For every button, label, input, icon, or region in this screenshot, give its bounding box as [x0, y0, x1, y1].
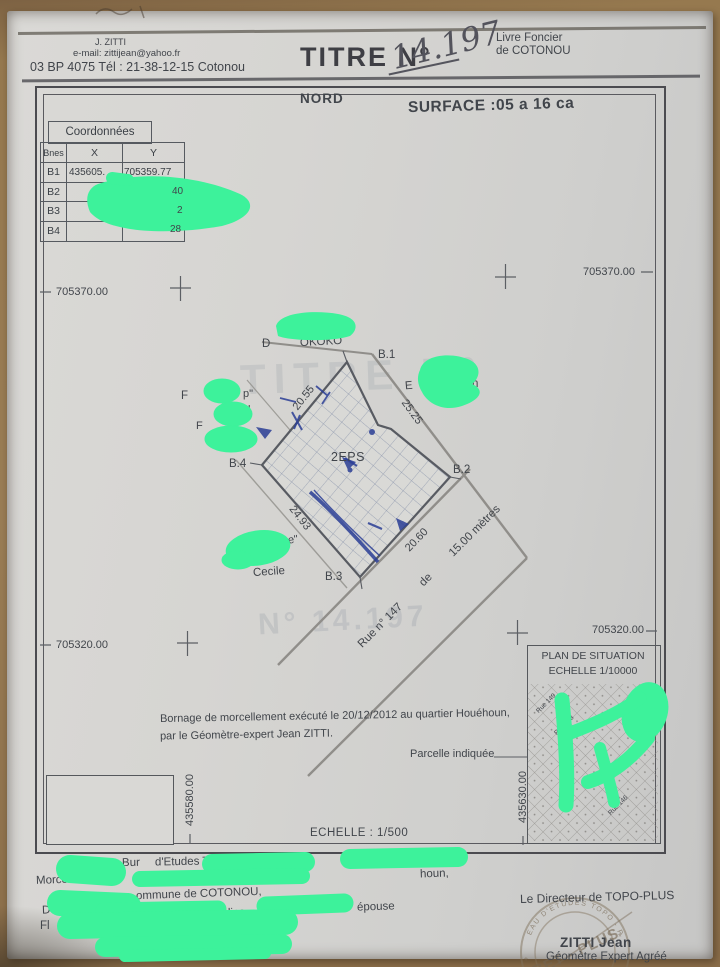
coordinates-table: Bnes X Y B1 435605. 705359.77 B2 B3 B4: [40, 142, 185, 242]
footer-frag-4c: épouse: [357, 900, 395, 913]
row-b4-name: B4: [41, 222, 67, 242]
row-b2-x: [67, 183, 123, 203]
grid-label-vertical-right: 435630.00: [517, 771, 529, 823]
row-b3-name: B3: [41, 202, 67, 222]
situation-title: PLAN DE SITUATION: [527, 650, 659, 662]
parcelle-indiquee-label: Parcelle indiquée: [410, 748, 494, 760]
row-b1-x: 435605.: [67, 163, 123, 183]
signer-title: Géomètre Expert Agréé: [546, 951, 667, 963]
neighbor-east-frag-a: E: [404, 380, 413, 393]
footer-frag-4b: lice: [228, 907, 246, 920]
col-header-y: Y: [123, 143, 184, 163]
row-b4-x: [67, 222, 123, 242]
signer-name: ZITTI Jean: [560, 935, 632, 950]
row-b1-name: B1: [41, 163, 67, 183]
neighbor-south-frag-a: e": [287, 533, 299, 546]
footer-frag-1b: d'Etudes T: [155, 856, 210, 869]
grid-label-bottom-left: 705320.00: [56, 639, 108, 651]
neighbor-north-frag-b: OKOKO: [300, 335, 343, 349]
corner-label-b1: B.1: [378, 349, 395, 361]
col-header-x: X: [67, 143, 123, 163]
table-title: Coordonnées: [48, 121, 152, 144]
neighbor-west-frag-a: F: [181, 390, 188, 402]
col-header-bnes: Bnes: [41, 143, 67, 163]
surveyor-name: J. ZITTI: [95, 37, 126, 47]
registry-line2: de COTONOU: [496, 45, 571, 57]
corner-label-b2: B.2: [453, 464, 470, 476]
neighbor-east-frag-b: n: [472, 378, 478, 390]
surveyor-email: e-mail: zittijean@yahoo.fr: [73, 48, 180, 59]
footer-frag-5: Fl: [40, 920, 50, 932]
footer-frag-2: Morcellem: [36, 873, 89, 887]
corner-label-b3: B.3: [325, 571, 342, 583]
neighbor-west-frag-d: F: [196, 420, 203, 432]
registry-line1: Livre Foncier: [496, 32, 562, 44]
grid-label-top-left: 705370.00: [56, 286, 108, 298]
scale-label: ECHELLE : 1/500: [310, 827, 408, 839]
row-b3-y: [123, 202, 184, 222]
footer-frag-1c: houn,: [420, 868, 449, 881]
neighbor-south-frag-b: Cecile: [253, 565, 286, 579]
legend-box: [46, 775, 174, 845]
north-label: NORD: [300, 91, 344, 106]
surveyor-address: 03 BP 4075 Tél : 21-38-12-15 Cotonou: [30, 60, 245, 74]
row-b3-x: [67, 202, 123, 222]
neighbor-north-frag-a: D: [262, 338, 270, 350]
footer-frag-1a: Bur: [122, 857, 140, 869]
row-b1-y: 705359.77: [123, 163, 184, 183]
parcel-label: 2EPS: [331, 450, 365, 464]
b3-y-fragment: 2: [177, 205, 183, 216]
b2-y-fragment: 40: [172, 186, 183, 197]
neighbor-west-frag-b: p": [243, 388, 253, 400]
neighbor-west-frag-c: l: [248, 404, 250, 416]
grid-label-top-right: 705370.00: [583, 266, 635, 278]
situation-scale: ECHELLE 1/10000: [527, 665, 659, 677]
b4-y-fragment: 28: [170, 224, 181, 235]
grid-label-bottom-right: 705320.00: [592, 624, 644, 636]
scanned-survey-document: J. ZITTI e-mail: zittijean@yahoo.fr 03 B…: [0, 0, 720, 967]
neighbor-east-frag-c: SHIEL: [432, 393, 471, 407]
footer-frag-4a: Deman: [42, 903, 79, 916]
grid-label-vertical-left: 435580.00: [184, 774, 196, 826]
corner-label-b4: B.4: [229, 458, 246, 470]
row-b2-name: B2: [41, 183, 67, 203]
